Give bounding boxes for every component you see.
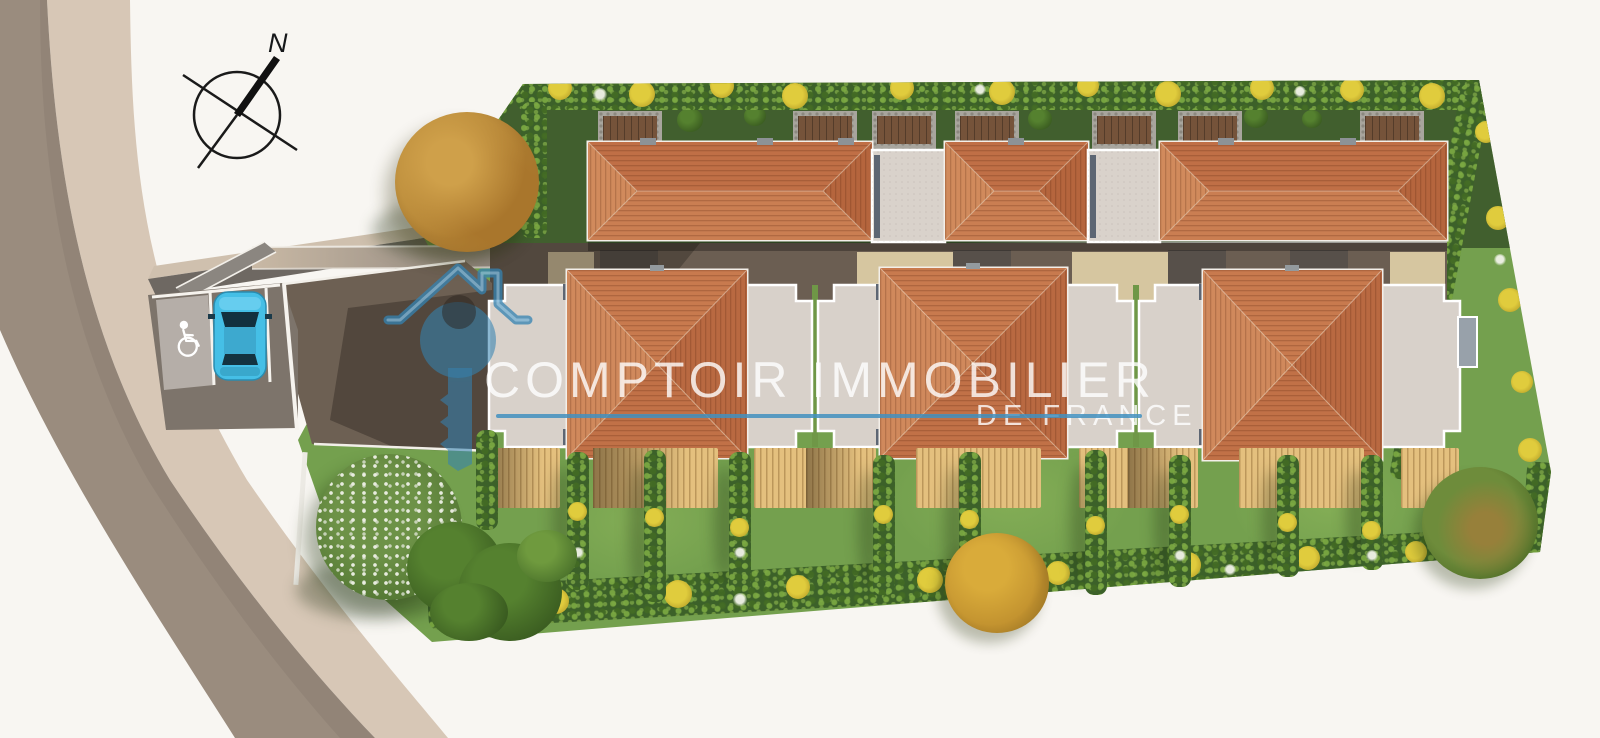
bloom-blob — [568, 502, 587, 521]
north-label: N — [268, 28, 288, 59]
shrub-cluster — [430, 583, 508, 641]
flower-blob — [1174, 550, 1186, 562]
flower-blob — [1366, 550, 1378, 562]
autumn-tree — [395, 112, 539, 252]
bloom-blob — [645, 508, 664, 527]
bloom-blob — [960, 510, 979, 529]
bloom-blob — [1278, 513, 1297, 532]
bloom-blob — [1362, 521, 1381, 540]
shrub — [517, 530, 577, 582]
site-plan-canvas: COMPTOIR IMMOBILIER DE FRANCE N — [0, 0, 1600, 738]
bloom-blob — [1086, 516, 1105, 535]
compass-rose-icon — [160, 20, 320, 180]
bloom-blob — [1170, 505, 1189, 524]
orange-tree — [945, 533, 1049, 633]
flower-blob — [734, 547, 746, 559]
bloom-blob — [730, 518, 749, 537]
olive-tree — [1422, 467, 1538, 579]
garden-hedgerow — [873, 455, 895, 595]
watermark-underline — [496, 414, 1142, 418]
bloom-blob — [874, 505, 893, 524]
